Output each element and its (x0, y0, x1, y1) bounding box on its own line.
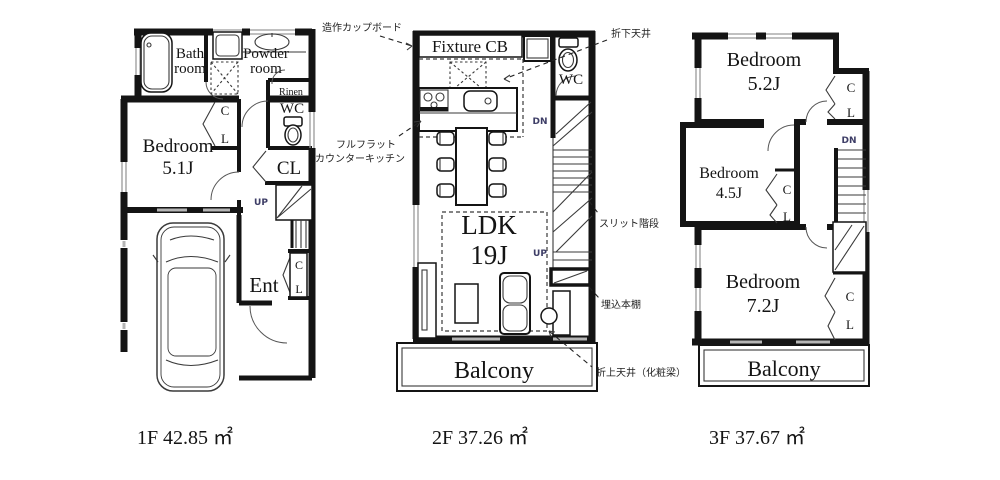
washing-machine-icon (211, 62, 238, 94)
floor1-area-caption: 1F 42.85 ㎡ (137, 425, 233, 449)
powder-room-label-line1: Powder (243, 46, 289, 62)
annotation-built-in-bookshelf: 埋込本棚 (601, 298, 641, 311)
closet-c-label: C (295, 258, 303, 272)
powder-room-label-line2: room (250, 61, 282, 77)
bathtub-icon (141, 33, 172, 92)
dn-label: DN (841, 136, 856, 146)
dining-table-icon (437, 128, 506, 205)
bathroom-label-line2: room (174, 61, 206, 77)
up-label: UP (533, 249, 547, 259)
closet-c-label: C (847, 80, 856, 95)
closet-l-label: L (783, 209, 791, 224)
balcony: Balcony (699, 345, 869, 386)
annotation-counter-kitchen-line2: カウンターキッチン (315, 153, 405, 165)
ldk-label-line2: 19J (470, 240, 508, 270)
bedroom-72-label-line2: 7.2J (747, 295, 780, 317)
ldk-label-line1: LDK (461, 210, 517, 240)
balcony-label: Balcony (454, 358, 534, 384)
floor3-area-caption: 3F 37.67 ㎡ (709, 425, 805, 449)
floor2-area-caption: 2F 37.26 ㎡ (432, 425, 528, 449)
bedroom-45-label-line1: Bedroom (699, 165, 759, 182)
floor-plan-drawing: Bath room Powder room Rinen Bedroom 5.1J… (0, 0, 1000, 480)
up-label: UP (254, 198, 268, 208)
wc-label: WC (280, 101, 304, 117)
built-in-bookshelf-icon (551, 269, 590, 285)
desk-chair-icon (541, 291, 570, 335)
hall-closet-label: CL (277, 158, 301, 179)
toilet-icon (284, 117, 302, 145)
floor3-plan: Bedroom 5.2J C L DN Bedroom 4.5J C L Bed… (683, 33, 869, 386)
coffee-table-icon (455, 284, 478, 323)
floor2-plan: Fixture CB WC (315, 21, 686, 391)
car-icon (153, 223, 230, 391)
tv-board-icon (418, 263, 436, 338)
closet-l-label: L (846, 317, 854, 332)
closet-l-label: L (295, 282, 302, 296)
leader-line (380, 36, 412, 46)
annotation-counter-kitchen-line1: フルフラット (336, 139, 396, 151)
bathroom-label-line1: Bath (176, 46, 205, 62)
stairs-icon (553, 102, 592, 260)
linen-closet-label: Rinen (279, 87, 303, 98)
floor1-plan: Bath room Powder room Rinen Bedroom 5.1J… (121, 29, 314, 391)
bedroom-51-label-line1: Bedroom (143, 136, 214, 157)
closet-c-label: C (221, 103, 230, 118)
closet-l-label: L (221, 131, 229, 146)
floor3-labels: Bedroom 5.2J C L DN Bedroom 4.5J C L Bed… (699, 49, 856, 332)
kitchen-icon (419, 59, 523, 137)
floor-captions: 1F 42.85 ㎡ 2F 37.26 ㎡ 3F 37.67 ㎡ (137, 425, 805, 449)
closet-c-label: C (783, 182, 792, 197)
annotation-custom-cupboard: 造作カップボード (322, 21, 402, 34)
bedroom-72-label-line1: Bedroom (726, 271, 801, 293)
bedroom-52-label-line1: Bedroom (727, 49, 802, 71)
stairs-icon (276, 185, 312, 248)
floor-plan-page: Bath room Powder room Rinen Bedroom 5.1J… (0, 0, 1000, 480)
refrigerator-icon (524, 36, 551, 61)
annotation-dropped-ceiling: 折下天井 (611, 27, 651, 40)
balcony-label: Balcony (747, 356, 820, 381)
bedroom-51-label-line2: 5.1J (162, 158, 193, 179)
annotation-slit-staircase: スリット階段 (599, 217, 659, 230)
closet-l-label: L (847, 105, 855, 120)
entrance-label: Ent (249, 273, 278, 297)
wc-label: WC (559, 72, 583, 88)
annotation-raised-ceiling: 折上天井（化粧梁） (596, 366, 686, 379)
bedroom-45-label-line2: 4.5J (716, 185, 742, 202)
dn-label: DN (532, 117, 547, 127)
fixture-cb-label: Fixture CB (432, 37, 508, 56)
balcony: Balcony (397, 343, 597, 391)
bedroom-52-label-line2: 5.2J (748, 73, 781, 95)
sofa-icon (500, 273, 530, 334)
closet-c-label: C (846, 289, 855, 304)
